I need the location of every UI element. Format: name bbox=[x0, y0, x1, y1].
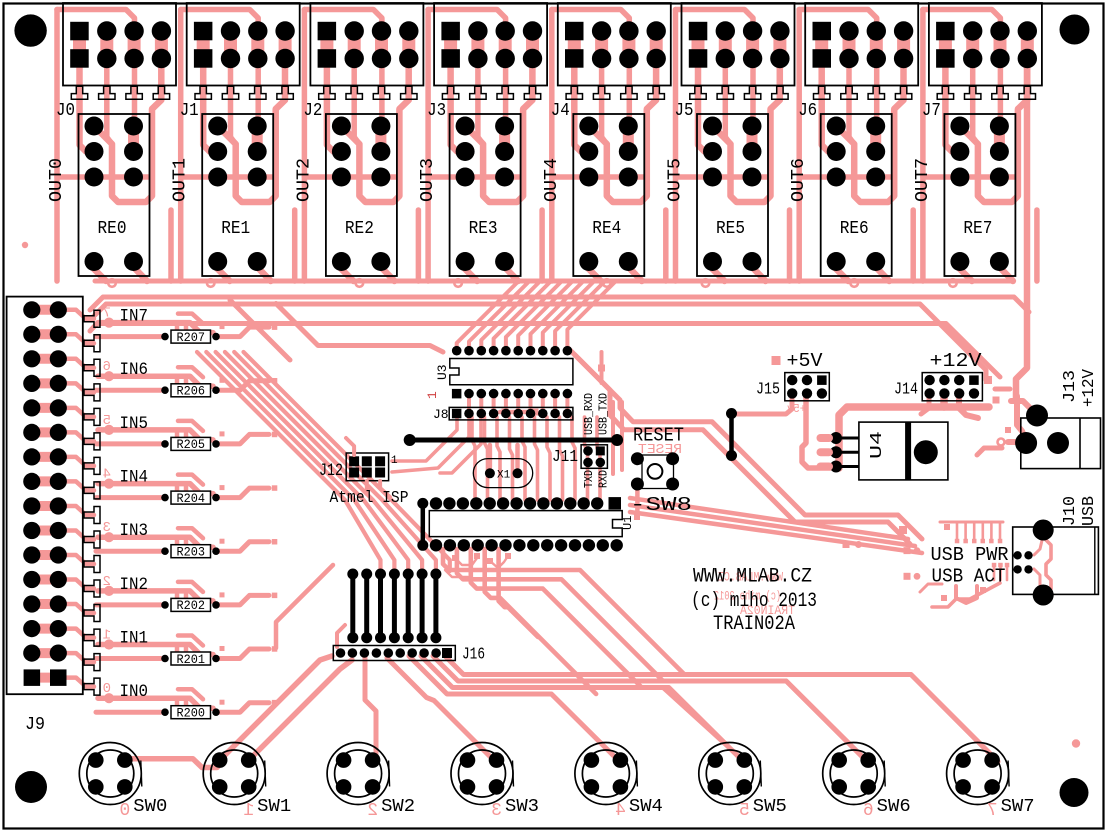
svg-text:J4: J4 bbox=[551, 100, 570, 121]
svg-text:J11: J11 bbox=[552, 447, 578, 466]
svg-text:R205: R205 bbox=[177, 438, 206, 452]
svg-text:OUT2: OUT2 bbox=[294, 158, 314, 202]
svg-text:4: 4 bbox=[103, 467, 111, 483]
svg-text:X1: X1 bbox=[497, 470, 511, 482]
svg-text:J5: J5 bbox=[675, 100, 694, 121]
svg-text:1: 1 bbox=[103, 628, 111, 644]
svg-text:OUT7: OUT7 bbox=[913, 158, 933, 202]
svg-text:RE3: RE3 bbox=[469, 218, 498, 239]
svg-text:J6: J6 bbox=[798, 100, 817, 121]
svg-text:IN5: IN5 bbox=[120, 414, 149, 434]
svg-text:IN3: IN3 bbox=[120, 521, 149, 541]
svg-text:J15: J15 bbox=[756, 381, 780, 400]
svg-text:R201: R201 bbox=[177, 653, 206, 667]
svg-text:2: 2 bbox=[367, 801, 378, 821]
svg-text:J13: J13 bbox=[1061, 370, 1080, 403]
svg-text:IN7: IN7 bbox=[120, 307, 149, 327]
svg-text:R204: R204 bbox=[177, 492, 206, 506]
svg-text:IN2: IN2 bbox=[120, 575, 149, 595]
svg-text:USB ACT: USB ACT bbox=[932, 566, 1006, 588]
svg-text:RE2: RE2 bbox=[345, 218, 374, 239]
svg-text:Atmel ISP: Atmel ISP bbox=[330, 489, 409, 508]
svg-text:6: 6 bbox=[863, 801, 874, 821]
svg-text:(c) miho 2013: (c) miho 2013 bbox=[691, 590, 817, 613]
svg-text:OUT4: OUT4 bbox=[542, 158, 562, 202]
svg-text:USB_RXD: USB_RXD bbox=[582, 393, 596, 435]
svg-text:USB_TXD: USB_TXD bbox=[597, 393, 611, 435]
svg-text:+12V: +12V bbox=[1080, 368, 1099, 407]
svg-text:J12: J12 bbox=[319, 461, 343, 481]
svg-text:3: 3 bbox=[103, 520, 111, 536]
svg-text:1: 1 bbox=[391, 455, 398, 467]
svg-text:U3: U3 bbox=[435, 364, 450, 380]
svg-text:+5v: +5v bbox=[787, 402, 806, 416]
svg-text:J9: J9 bbox=[25, 715, 45, 735]
svg-text:4: 4 bbox=[615, 801, 626, 821]
svg-text:RE1: RE1 bbox=[221, 218, 250, 239]
svg-text:2: 2 bbox=[103, 574, 111, 590]
svg-text:TRAIN02A: TRAIN02A bbox=[713, 613, 795, 636]
svg-text:OUT0: OUT0 bbox=[47, 158, 67, 202]
svg-text:R202: R202 bbox=[177, 599, 206, 613]
svg-text:WWW.MLAB.CZ: WWW.MLAB.CZ bbox=[693, 566, 812, 589]
svg-text:6: 6 bbox=[103, 359, 111, 375]
svg-text:R200: R200 bbox=[177, 707, 206, 721]
svg-text:OUT6: OUT6 bbox=[789, 158, 809, 202]
svg-text:IN4: IN4 bbox=[120, 468, 149, 488]
svg-text:SW0: SW0 bbox=[133, 796, 167, 817]
svg-text:IN1: IN1 bbox=[120, 629, 149, 649]
svg-text:J8: J8 bbox=[433, 407, 449, 422]
svg-text:OUT1: OUT1 bbox=[171, 158, 191, 202]
svg-text:TXD: TXD bbox=[582, 470, 596, 488]
svg-text:5: 5 bbox=[103, 413, 111, 429]
svg-text:SW2: SW2 bbox=[381, 796, 415, 817]
svg-text:SW6: SW6 bbox=[877, 796, 911, 817]
svg-text:RE6: RE6 bbox=[840, 218, 869, 239]
svg-text:U4: U4 bbox=[868, 431, 887, 459]
svg-text:R207: R207 bbox=[177, 331, 206, 345]
svg-text:1: 1 bbox=[243, 801, 254, 821]
svg-text:-SW8: -SW8 bbox=[630, 494, 692, 516]
svg-text:J2: J2 bbox=[303, 100, 322, 121]
svg-text:R203: R203 bbox=[177, 546, 206, 560]
svg-text:RXD: RXD bbox=[597, 470, 611, 488]
svg-text:IN6: IN6 bbox=[120, 360, 149, 380]
svg-text:J14: J14 bbox=[894, 381, 918, 400]
svg-text:SW1: SW1 bbox=[257, 796, 291, 817]
svg-text:0: 0 bbox=[119, 801, 130, 821]
svg-text:SW7: SW7 bbox=[1001, 796, 1035, 817]
svg-text:7: 7 bbox=[103, 306, 111, 322]
svg-text:J0: J0 bbox=[56, 100, 75, 121]
svg-text:J10: J10 bbox=[1061, 496, 1080, 526]
svg-text:RE5: RE5 bbox=[716, 218, 745, 239]
svg-text:RE7: RE7 bbox=[963, 218, 992, 239]
svg-text:J7: J7 bbox=[922, 100, 941, 121]
svg-text:+12V: +12V bbox=[930, 350, 982, 372]
svg-text:RE4: RE4 bbox=[592, 218, 621, 239]
svg-text:1: 1 bbox=[425, 391, 440, 399]
svg-text:J1: J1 bbox=[180, 100, 199, 121]
svg-text:IN0: IN0 bbox=[120, 682, 149, 702]
svg-text:OUT5: OUT5 bbox=[666, 158, 686, 202]
svg-text:USB: USB bbox=[1080, 496, 1099, 526]
svg-text:7: 7 bbox=[987, 801, 998, 821]
svg-text:3: 3 bbox=[491, 801, 502, 821]
svg-text:5: 5 bbox=[739, 801, 750, 821]
svg-text:USB PWR: USB PWR bbox=[931, 544, 1009, 566]
svg-text:SW3: SW3 bbox=[505, 796, 539, 817]
svg-text:SW4: SW4 bbox=[629, 796, 663, 817]
svg-text:U1: U1 bbox=[621, 516, 635, 530]
svg-text:SW5: SW5 bbox=[753, 796, 787, 817]
svg-text:RESET: RESET bbox=[633, 425, 684, 447]
svg-text:OUT3: OUT3 bbox=[418, 158, 438, 202]
svg-text:R206: R206 bbox=[177, 385, 206, 399]
svg-text:RE0: RE0 bbox=[98, 218, 127, 239]
svg-text:J3: J3 bbox=[427, 100, 446, 121]
svg-text:J16: J16 bbox=[462, 646, 485, 665]
svg-text:0: 0 bbox=[103, 681, 111, 697]
svg-text:+5V: +5V bbox=[787, 350, 824, 372]
